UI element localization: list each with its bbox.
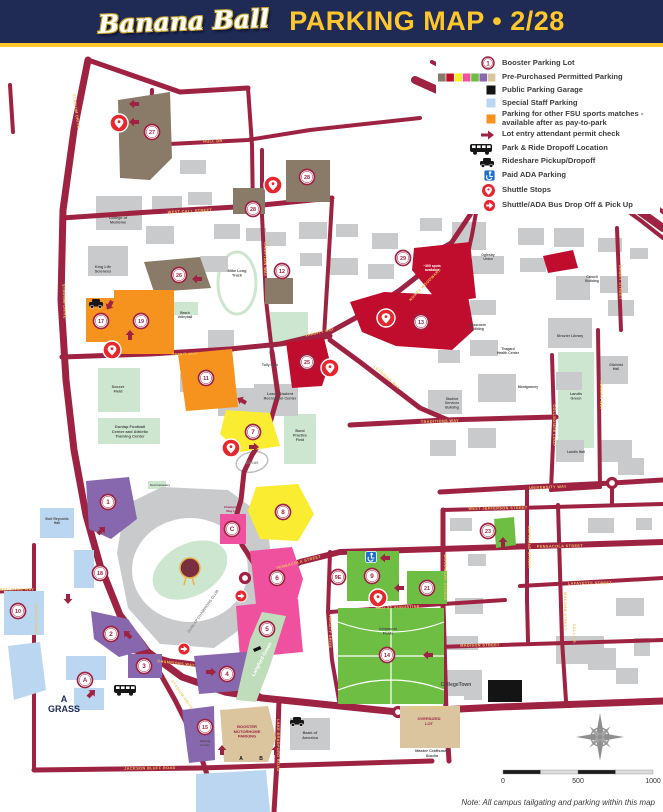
street-label: HAYDEN ROAD [34,603,38,635]
pin-legend-icon [436,183,496,198]
legend-item-label: Pre-Purchased Permitted Parking [502,73,660,82]
map-label: StudentServicesBuilding [445,397,459,409]
shuttle-stop-pin [110,114,128,132]
svg-text:500: 500 [572,778,584,785]
banana-ball-logo: Banana Ball [98,4,270,39]
svg-text:5: 5 [265,626,269,633]
svg-text:29: 29 [400,256,406,262]
campus-building [420,218,442,231]
lot-badge-23: 23 [481,524,496,539]
campus-building [188,192,212,205]
campus-building [554,228,584,247]
permit-check-arrow-icon [480,130,496,140]
map-label: CarnellBuilding [585,275,599,283]
lot-badge-15: 15 [198,720,213,735]
svg-text:1: 1 [106,499,110,506]
lot-badge-28: 28 [246,202,261,217]
svg-text:7: 7 [251,429,255,436]
misc-layer: 05001000 [501,713,661,785]
svg-text:21: 21 [424,586,430,592]
park-and-ride-bus-icon [114,685,136,696]
campus-building [430,440,456,456]
svg-text:15: 15 [202,725,208,731]
street-label: MACOMB STREET [563,592,567,631]
street-label: COLLIER [572,624,576,643]
campus-building [300,253,322,266]
lot-badge-29: 29 [396,251,411,266]
bus-icon [468,142,496,155]
lot-badge-28: 28 [300,170,315,185]
lot-badge-21: 21 [420,581,435,596]
road [258,542,663,584]
legend: 1Booster Parking LotPre-Purchased Permit… [436,54,660,214]
shuttle-stop-pin [321,359,339,377]
square-legend-icon [436,114,496,124]
svg-text:18: 18 [97,571,103,577]
street-label: PENSACOLA STREET [537,544,583,549]
shuttle-stop-pin [103,341,121,359]
lot-badge-3: 3 [137,659,152,674]
scale-bar: 05001000 [501,770,661,785]
legend-color-square [486,114,496,124]
campus-building [180,160,206,174]
map-label: ThagardHealth Center [497,347,520,355]
lot-badge-26: 26 [172,268,187,283]
svg-text:25: 25 [304,360,310,366]
map-label: Circus [245,460,259,465]
campus-building [468,428,496,448]
svg-text:23: 23 [485,529,491,535]
parking-lot-lightblue [74,550,94,588]
campus-building [618,458,644,475]
map-label: King LifeSciences [95,265,111,274]
swatches-legend-icon [436,73,496,82]
legend-item-ada: Paid ADA Parking [436,169,660,182]
svg-text:3: 3 [142,663,146,670]
campus-building [518,228,544,245]
map-label: College ofMedicine [109,216,128,225]
arrow-legend-icon [436,130,496,140]
car-icon [478,156,496,168]
shuttle-dropoff-icon [483,199,496,212]
legend-item-booster: 1Booster Parking Lot [436,56,660,70]
street-label: LAKE BRADFORD ROAD [276,719,280,772]
lot-badge-C: C [225,522,240,537]
lot-badge-A: A [78,673,93,688]
campus-building [470,300,496,315]
street-label: WEST JEFFERSON STREET [468,506,528,511]
legend-item-square: Public Parking Garage [436,84,660,96]
street-label: COLLEGIATE LOOP [552,404,556,446]
svg-text:13: 13 [418,320,424,326]
svg-text:19: 19 [138,319,144,325]
street-label: VARSITY DRIVE [328,614,332,648]
lot-badge-25: 25 [300,355,315,370]
map-label: Landis Hall [567,450,585,454]
campus-building [450,518,472,531]
campus-building [588,518,614,533]
campus-building [630,248,648,259]
campus-building [520,258,546,272]
street-label: COPELAND STREET [527,526,531,570]
legend-item-label: Park & Ride Dropoff Location [502,144,660,153]
street-label: LAFAYETTE STREET [568,581,613,586]
street-label: HONORS WAY [599,380,603,410]
map-label: Strozier Library [557,334,584,338]
svg-text:A: A [83,677,88,684]
lot-badge-5: 5 [260,622,275,637]
map-label: Leach StudentRecreation Center [264,392,297,401]
road [150,118,420,145]
lot-badge-11: 11 [199,371,214,386]
lot-badge-9E: 9E [331,570,346,585]
lot-badge-10: 10 [11,604,26,619]
map-label: OglesbyUnion [481,253,494,261]
svg-text:28: 28 [250,207,256,213]
road [88,60,248,92]
svg-text:26: 26 [176,273,182,279]
lot-badge-4: 4 [220,667,235,682]
campus-building [556,372,582,390]
svg-text:2: 2 [109,631,113,638]
legend-item-label: Booster Parking Lot [502,59,660,68]
campus-building [214,224,240,239]
campus-building [548,318,592,348]
legend-color-square [486,98,496,108]
legend-item-label: Parking for other FSU sports matches - a… [502,110,660,128]
map-label: CollegeTown [441,682,472,688]
svg-text:12: 12 [279,269,285,275]
campus-building [299,222,327,239]
legend-item-pin: Shuttle Stops [436,183,660,198]
map-note: Note: All campus tailgating and parking … [461,798,655,807]
campus-building [464,688,482,700]
map-label: Montgomery [518,385,538,389]
bus-legend-icon [436,142,496,155]
lot-badge-13: 13 [414,315,429,330]
map-label: ~300 spotsavailable [423,264,441,272]
shuttle-stop-pin [369,589,387,607]
svg-text:17: 17 [98,319,104,325]
svg-text:11: 11 [203,376,209,382]
lot-badge-1: 1 [101,495,116,510]
map-label: B [259,756,263,762]
campus-building [438,350,460,363]
map-label: Dunlap FootballCenter and AthleticTraini… [112,424,149,439]
map-label: A [239,756,243,762]
svg-text:27: 27 [149,130,155,136]
svg-text:1000: 1000 [645,778,661,785]
ada-parking-icon [366,552,377,563]
campus-building [470,340,498,356]
circle-arrow-legend-icon [436,199,496,212]
lot-badge-19: 19 [134,314,149,329]
parking-lot-lightblue [196,770,270,812]
shuttle-ada-dropoff-icon [178,643,190,655]
shuttle-stop-icon [481,183,496,198]
street-label: TRADITIONS WAY [421,419,459,424]
campus-building [368,264,394,279]
street-label: MADISON STREET [460,643,500,648]
shuttle-stop-pin [481,183,495,197]
svg-text:0: 0 [501,778,505,785]
map-label: Tully Gym [262,363,278,367]
svg-text:8: 8 [281,509,285,516]
legend-item-car: Rideshare Pickup/Dropoff [436,156,660,168]
legend-item-label: Special Staff Parking [502,99,660,108]
ada-parking-icon [484,170,495,181]
lot-badge-14: 14 [380,648,395,663]
legend-item-bus: Park & Ride Dropoff Location [436,142,660,155]
parking-lot-15 [182,706,215,763]
campus-building [616,668,638,684]
map-label: Master CraftsmanStudio [415,748,449,758]
lot-badge-17: 17 [94,314,109,329]
parking-lot-12 [265,278,293,304]
campus-building [600,276,628,293]
lot-badge-2: 2 [104,627,119,642]
legend-item-square: Special Staff Parking [436,97,660,109]
campus-building [336,224,358,237]
shuttle-stop-pin [222,439,240,457]
legend-item-label: Shuttle/ADA Bus Drop Off & Pick Up [502,201,660,210]
square-legend-icon [436,98,496,108]
svg-text:C: C [230,526,235,533]
svg-text:9: 9 [370,573,374,580]
square-legend-icon [436,85,496,95]
legend-item-square: Parking for other FSU sports matches - a… [436,110,660,128]
seminole-logo [180,558,200,578]
campus-building [146,226,174,244]
parking-lot-black [488,680,522,702]
campus-building [478,374,516,402]
rideshare-car-icon [480,158,494,168]
map-label: SkatingCenter [200,739,211,747]
svg-text:6: 6 [275,575,279,582]
legend-color-square [486,85,496,95]
svg-text:9E: 9E [335,575,342,581]
lot-badge-18: 18 [93,566,108,581]
legend-item-label: Lot entry attendant permit check [502,130,660,139]
parking-lot-lightblue [8,642,46,700]
compass-rose [576,713,624,761]
shuttle-stop-pin [264,176,282,194]
lot-badge-8: 8 [276,505,291,520]
svg-text:28: 28 [304,175,310,181]
permit-color-swatches [438,73,496,82]
ada-legend-icon [436,169,496,182]
road [34,761,432,770]
campus-building [636,518,652,530]
park-and-ride-bus-icon [470,144,492,155]
parking-map-page: Banana Ball PARKING MAP • 2/28 272826122… [0,0,663,812]
street-label: DEWEY STREET [618,265,622,300]
map-label: LandisGreen [570,392,582,401]
road [262,698,663,712]
lot-badge-9: 9 [365,569,380,584]
shuttle-stop-pin [377,309,395,327]
booster-lot-icon: 1 [480,56,496,70]
parking-lot-tan [400,706,460,748]
legend-item-label: Paid ADA Parking [502,171,660,180]
legend-item-arrow: Lot entry attendant permit check [436,129,660,141]
legend-item-circle-arrow: Shuttle/ADA Bus Drop Off & Pick Up [436,199,660,212]
svg-text:10: 10 [15,609,21,615]
lot-badge-7: 7 [246,425,261,440]
roundabout [241,574,250,583]
page-title: PARKING MAP • 2/28 [289,6,565,37]
booster-legend-icon: 1 [436,56,496,70]
street-label: WOODWARD AVENUE [443,554,447,600]
street-label: CHIEFTAIN WAY [263,242,267,277]
permit-check-arrow [64,594,73,604]
car-legend-icon [436,156,496,168]
map-label: ClassroomBuilding [468,323,486,331]
campus-building [330,258,358,275]
svg-text:14: 14 [384,653,390,659]
header: Banana Ball PARKING MAP • 2/28 [0,0,663,47]
lot-badge-12: 12 [275,264,290,279]
street-label: HULL DR [203,139,223,144]
campus-building [468,554,486,566]
ada-icon [483,169,496,182]
shuttle-ada-dropoff-icon [235,590,247,602]
campus-building [372,233,398,249]
legend-item-label: Rideshare Pickup/Dropoff [502,157,660,166]
legend-item-label: Public Parking Garage [502,86,660,95]
lot-badge-27: 27 [145,125,160,140]
map-label: Sod Cemetery [150,483,171,487]
lot-badge-6: 6 [270,571,285,586]
roundabout [608,479,617,488]
road [10,85,13,132]
legend-item-swatches: Pre-Purchased Permitted Parking [436,71,660,83]
legend-item-label: Shuttle Stops [502,186,660,195]
map-label: Bank ofAmerica [302,730,319,740]
parking-lot-crimson [543,250,578,273]
street-label: BELLEVUE WAY [0,587,34,591]
svg-text:4: 4 [225,671,229,678]
campus-building [616,598,644,616]
